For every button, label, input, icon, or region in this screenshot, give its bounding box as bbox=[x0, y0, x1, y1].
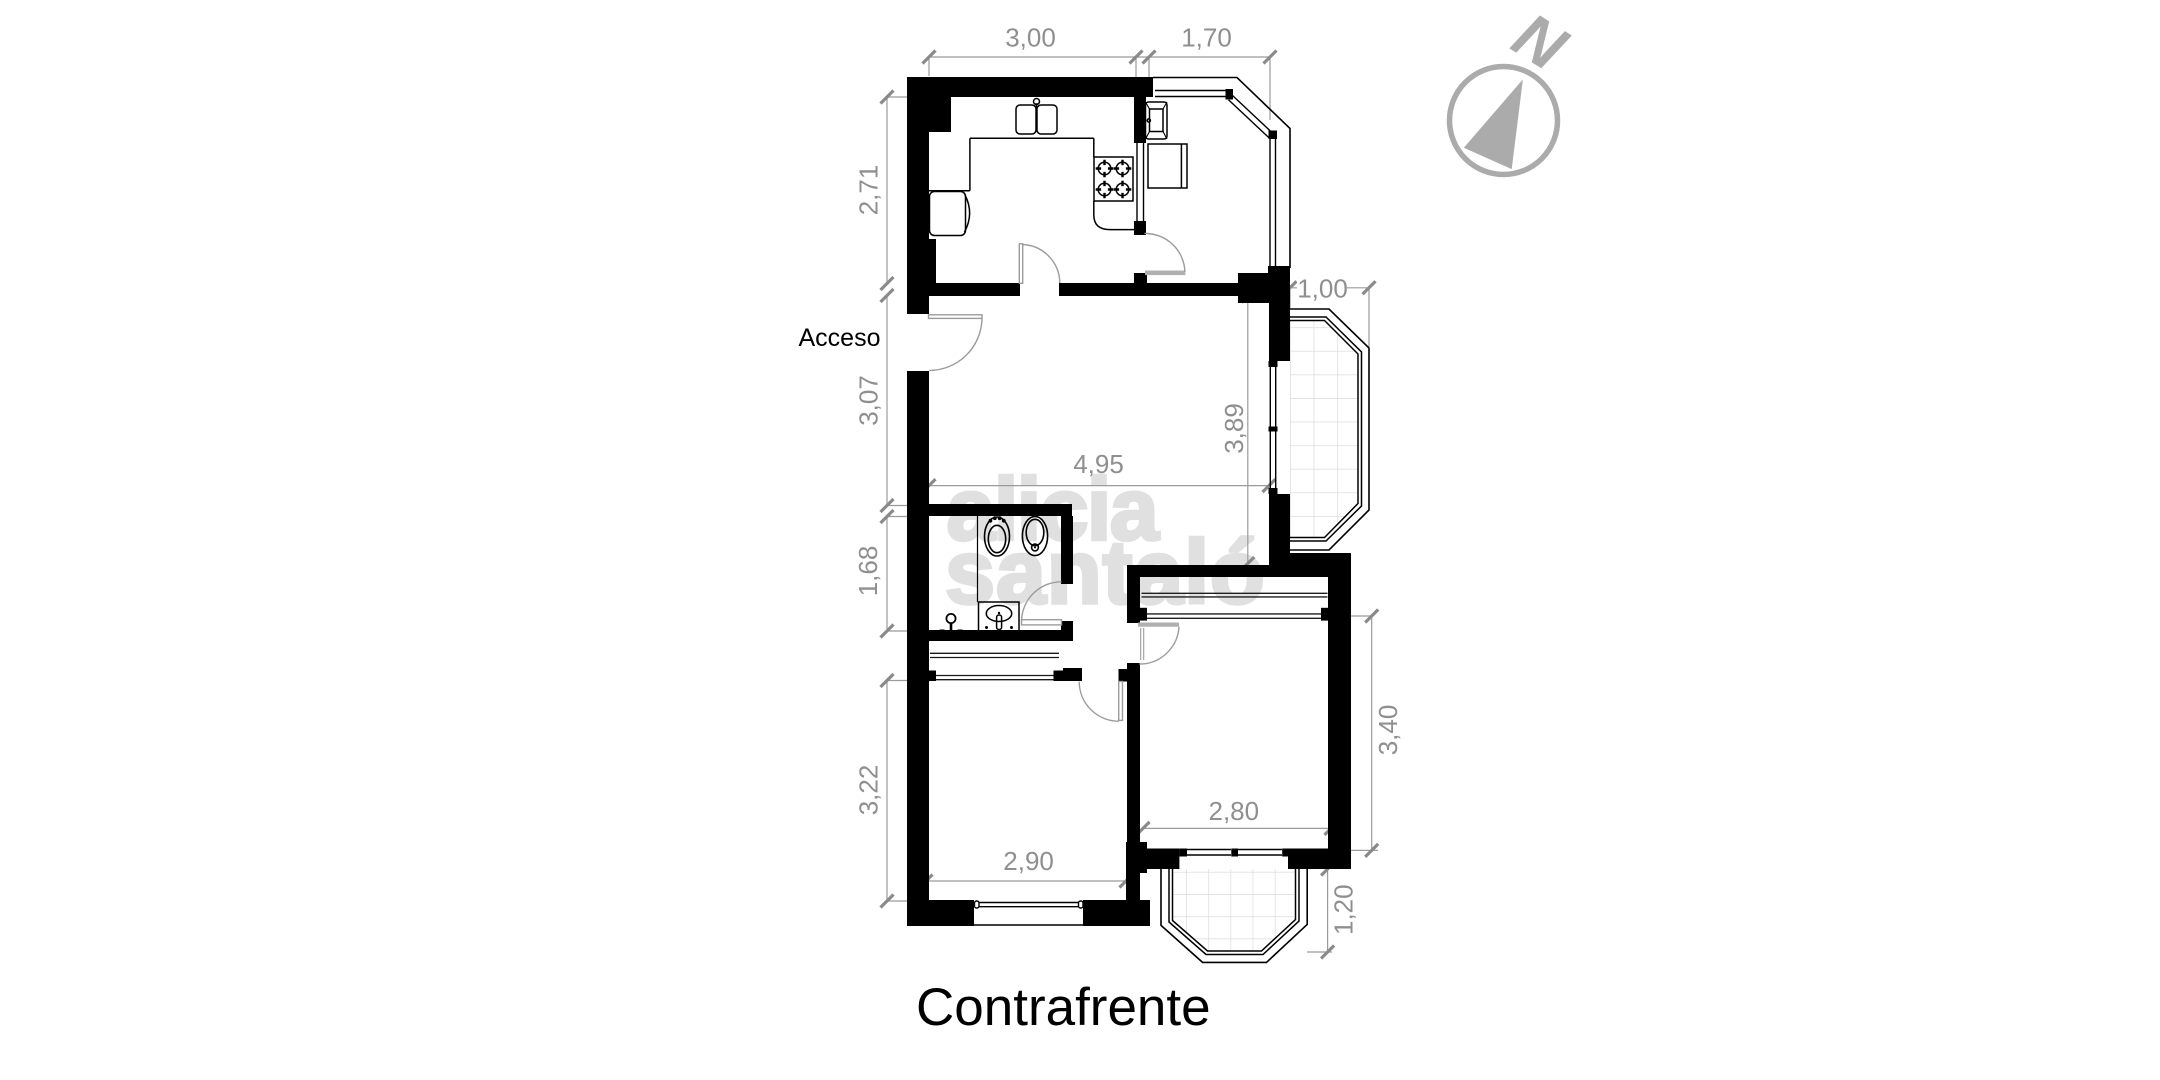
svg-text:2,90: 2,90 bbox=[1003, 846, 1054, 876]
svg-text:Contrafrente: Contrafrente bbox=[916, 978, 1211, 1037]
svg-text:3,22: 3,22 bbox=[854, 765, 884, 816]
svg-text:3,07: 3,07 bbox=[854, 375, 884, 426]
svg-text:1,20: 1,20 bbox=[1329, 884, 1359, 935]
svg-text:Acceso: Acceso bbox=[799, 324, 881, 352]
svg-text:3,89: 3,89 bbox=[1219, 403, 1249, 454]
svg-text:1,68: 1,68 bbox=[853, 546, 883, 597]
svg-text:2,80: 2,80 bbox=[1208, 796, 1259, 826]
svg-text:3,00: 3,00 bbox=[1005, 23, 1056, 53]
svg-text:1,00: 1,00 bbox=[1297, 273, 1348, 303]
svg-text:2,71: 2,71 bbox=[854, 165, 884, 216]
svg-text:4,95: 4,95 bbox=[1073, 449, 1124, 479]
svg-text:3,40: 3,40 bbox=[1373, 705, 1403, 756]
svg-text:1,70: 1,70 bbox=[1181, 23, 1232, 53]
